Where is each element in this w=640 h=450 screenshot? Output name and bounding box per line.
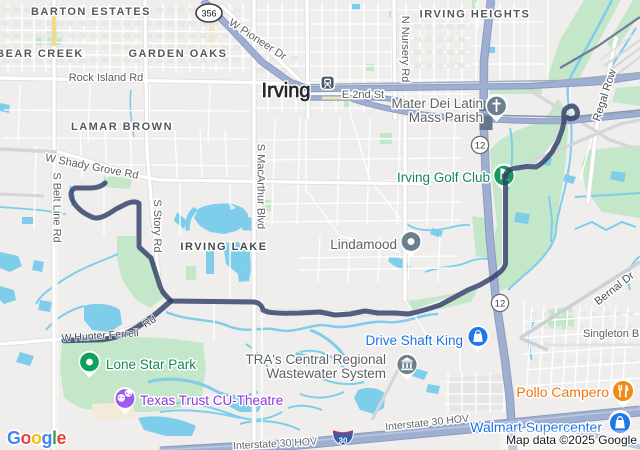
svg-text:BARTON ESTATES: BARTON ESTATES (31, 6, 151, 18)
svg-text:12: 12 (495, 299, 506, 310)
svg-text:GARDEN OAKS: GARDEN OAKS (128, 48, 227, 60)
svg-text:12: 12 (475, 141, 486, 152)
svg-text:Drive Shaft King: Drive Shaft King (365, 333, 463, 348)
svg-text:30: 30 (339, 437, 348, 446)
svg-text:S Story Rd: S Story Rd (151, 199, 163, 252)
svg-text:Rock Island Rd: Rock Island Rd (69, 72, 144, 84)
svg-text:E 2nd St: E 2nd St (342, 89, 384, 101)
svg-text:Lindamood: Lindamood (330, 237, 397, 252)
svg-text:Texas Trust CU-Theatre: Texas Trust CU-Theatre (140, 393, 283, 408)
svg-text:Lone Star Park: Lone Star Park (106, 357, 196, 372)
svg-text:Map data ©2025 Google: Map data ©2025 Google (506, 433, 637, 447)
svg-text:S Belt Line Rd: S Belt Line Rd (51, 172, 63, 242)
svg-text:Irving: Irving (262, 80, 311, 102)
svg-text:S MacArthur Blvd: S MacArthur Blvd (255, 144, 267, 230)
svg-text:LAMAR BROWN: LAMAR BROWN (71, 121, 173, 133)
svg-text:Wastewater System: Wastewater System (266, 366, 386, 381)
svg-text:Mater Dei Latin: Mater Dei Latin (391, 96, 483, 111)
svg-text:356: 356 (201, 9, 216, 19)
svg-text:Pollo Campero: Pollo Campero (516, 384, 609, 400)
svg-text:Google: Google (7, 428, 67, 448)
svg-text:Singleton Blvd: Singleton Blvd (583, 328, 640, 340)
svg-text:IRVING LAKE: IRVING LAKE (180, 241, 267, 253)
svg-text:N Nursery Rd: N Nursery Rd (399, 16, 411, 83)
svg-text:TRA's Central Regional: TRA's Central Regional (245, 352, 386, 367)
svg-text:Mass Parish: Mass Parish (409, 110, 483, 125)
svg-text:BEAR CREEK: BEAR CREEK (0, 48, 84, 60)
svg-text:Irving Golf Club: Irving Golf Club (397, 170, 490, 185)
svg-text:IRVING HEIGHTS: IRVING HEIGHTS (420, 9, 531, 21)
